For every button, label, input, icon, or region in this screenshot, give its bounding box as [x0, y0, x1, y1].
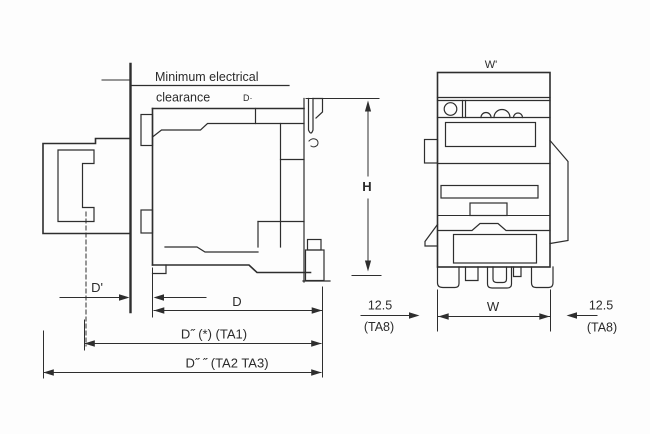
dim-d-arrow-left [154, 307, 165, 313]
dim-dprime-label: D' [91, 280, 103, 295]
din-clip-bottom-upper [308, 240, 322, 251]
foot-small-right [514, 267, 522, 277]
body-base-line [165, 247, 258, 252]
front-bump-profile-line [438, 224, 551, 231]
body-bottom-line [153, 265, 311, 273]
dim-125-right-arrow [567, 312, 578, 318]
side-view: Minimum electrical clearance D· [43, 64, 381, 378]
front-tab-lower [141, 210, 153, 233]
left-bracket-cutout [58, 150, 94, 222]
foot-right [532, 267, 554, 288]
dim-dta23-arrow-right [311, 369, 322, 375]
dim-dta1-label: D˝ (*) (TA1) [181, 327, 247, 342]
contactor-dimension-drawing: Minimum electrical clearance D· [0, 0, 650, 434]
front-body-outline [438, 73, 551, 268]
foot-center-outer [488, 267, 512, 288]
dim-h-arrow-down [365, 261, 371, 272]
din-clip-top-finger [309, 99, 314, 134]
dim-w-arrow-left [438, 313, 449, 319]
body-front-foot [153, 265, 167, 274]
dim-dta1-arrow-right [311, 340, 322, 346]
terminal-screw-circle [444, 103, 457, 116]
dim-dprime-arrow-left [154, 294, 165, 300]
screw-bump-3 [514, 113, 523, 118]
din-clip-top-hook [313, 99, 323, 119]
screw-bump-2 [494, 110, 510, 118]
front-window-1 [446, 123, 536, 147]
clearance-note-suffix: D· [243, 93, 253, 103]
dim-w-label: W [487, 299, 500, 314]
din-latch-detail-icon [309, 139, 318, 147]
dim-d-label: D [232, 294, 241, 309]
technical-drawing-page: Minimum electrical clearance D· [0, 0, 650, 434]
foot-left [438, 267, 460, 288]
front-tab-upper [141, 115, 153, 146]
body-inner-step-line [153, 124, 305, 138]
dim-125-right-value: 12.5 [589, 299, 613, 313]
clearance-note-line1: Minimum electrical [155, 70, 259, 84]
dim-w-arrow-right [539, 313, 550, 319]
dim-dta23-arrow-left [43, 369, 54, 375]
foot-center-inner [493, 267, 507, 283]
screw-bump-1 [481, 113, 491, 118]
dim-125-left-value: 12.5 [368, 299, 392, 313]
clearance-note-line2: clearance [156, 91, 210, 105]
dim-dprime-arrow-right [119, 294, 130, 300]
front-window-2 [441, 186, 538, 199]
side-tab-left-upper [425, 140, 438, 164]
dim-h-label: H [362, 179, 371, 194]
dim-125-left-arrow [409, 312, 420, 318]
front-window-3 [470, 203, 507, 216]
side-tab-left-lower [425, 225, 438, 247]
dim-125-left-ref: (TA8) [364, 320, 394, 334]
front-view: W' W 12.5 [361, 59, 617, 335]
dim-dta23-label: D˝ ˝ (TA2 TA3) [185, 356, 268, 371]
side-tab-right [550, 141, 568, 244]
front-window-4 [454, 235, 537, 264]
dim-125-right-ref: (TA8) [587, 321, 617, 335]
dim-wprime-label: W' [485, 59, 497, 71]
foot-small-left [466, 267, 479, 281]
dim-d-arrow-right [312, 307, 323, 313]
din-clip-bottom-lower [306, 250, 325, 281]
